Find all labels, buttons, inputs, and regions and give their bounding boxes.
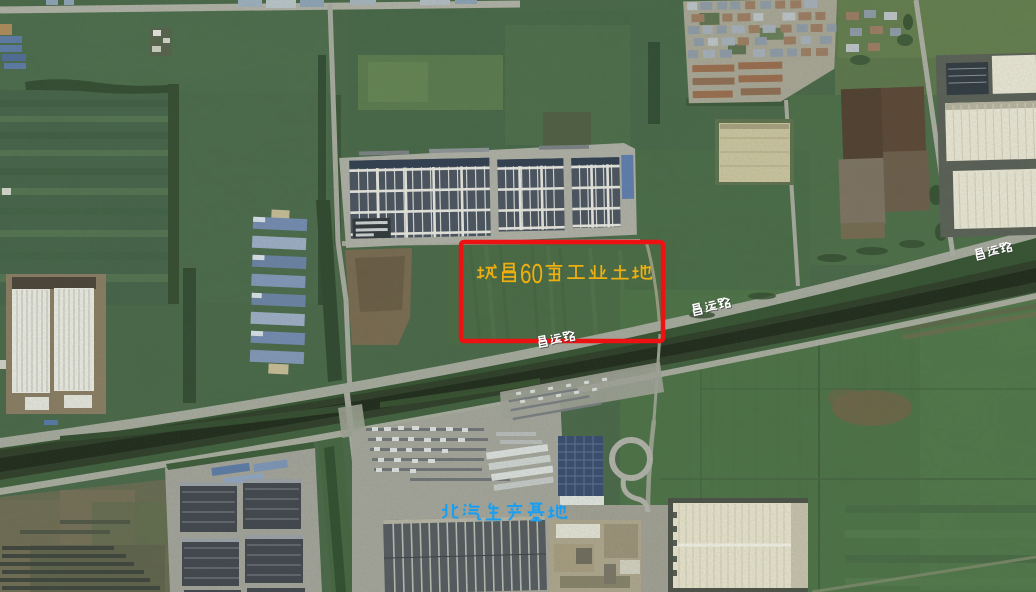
svg-text:60: 60 (520, 258, 543, 289)
